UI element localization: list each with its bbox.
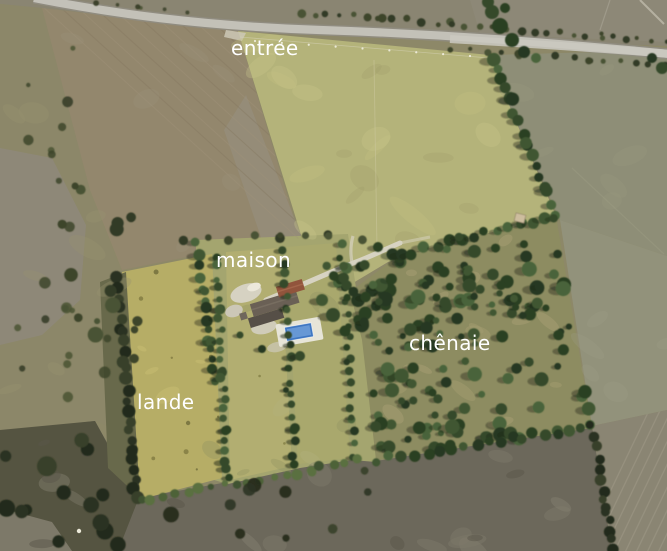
label-chenaie: chênaie [409,332,491,354]
aerial-photo [0,0,667,551]
label-lande: lande [137,391,195,413]
label-entree: entrée [231,37,299,59]
label-maison: maison [216,249,291,271]
screenshot-root: entrée maison chênaie lande [0,0,667,551]
